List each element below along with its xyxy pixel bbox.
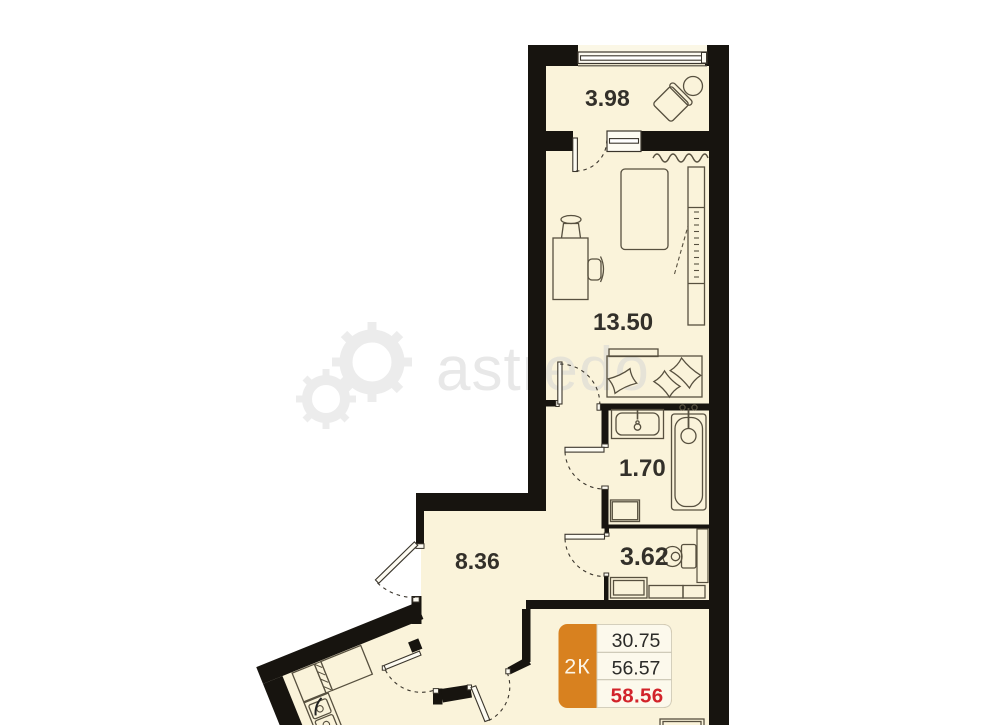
svg-text:2К: 2К xyxy=(564,655,590,679)
svg-text:13.50: 13.50 xyxy=(593,309,653,336)
svg-text:56.57: 56.57 xyxy=(612,658,661,680)
svg-text:1.70: 1.70 xyxy=(619,455,666,482)
svg-text:3.62: 3.62 xyxy=(620,543,669,571)
svg-text:58.56: 58.56 xyxy=(611,685,664,708)
svg-text:30.75: 30.75 xyxy=(612,630,661,652)
svg-text:8.36: 8.36 xyxy=(455,548,500,574)
svg-text:3.98: 3.98 xyxy=(585,85,630,111)
